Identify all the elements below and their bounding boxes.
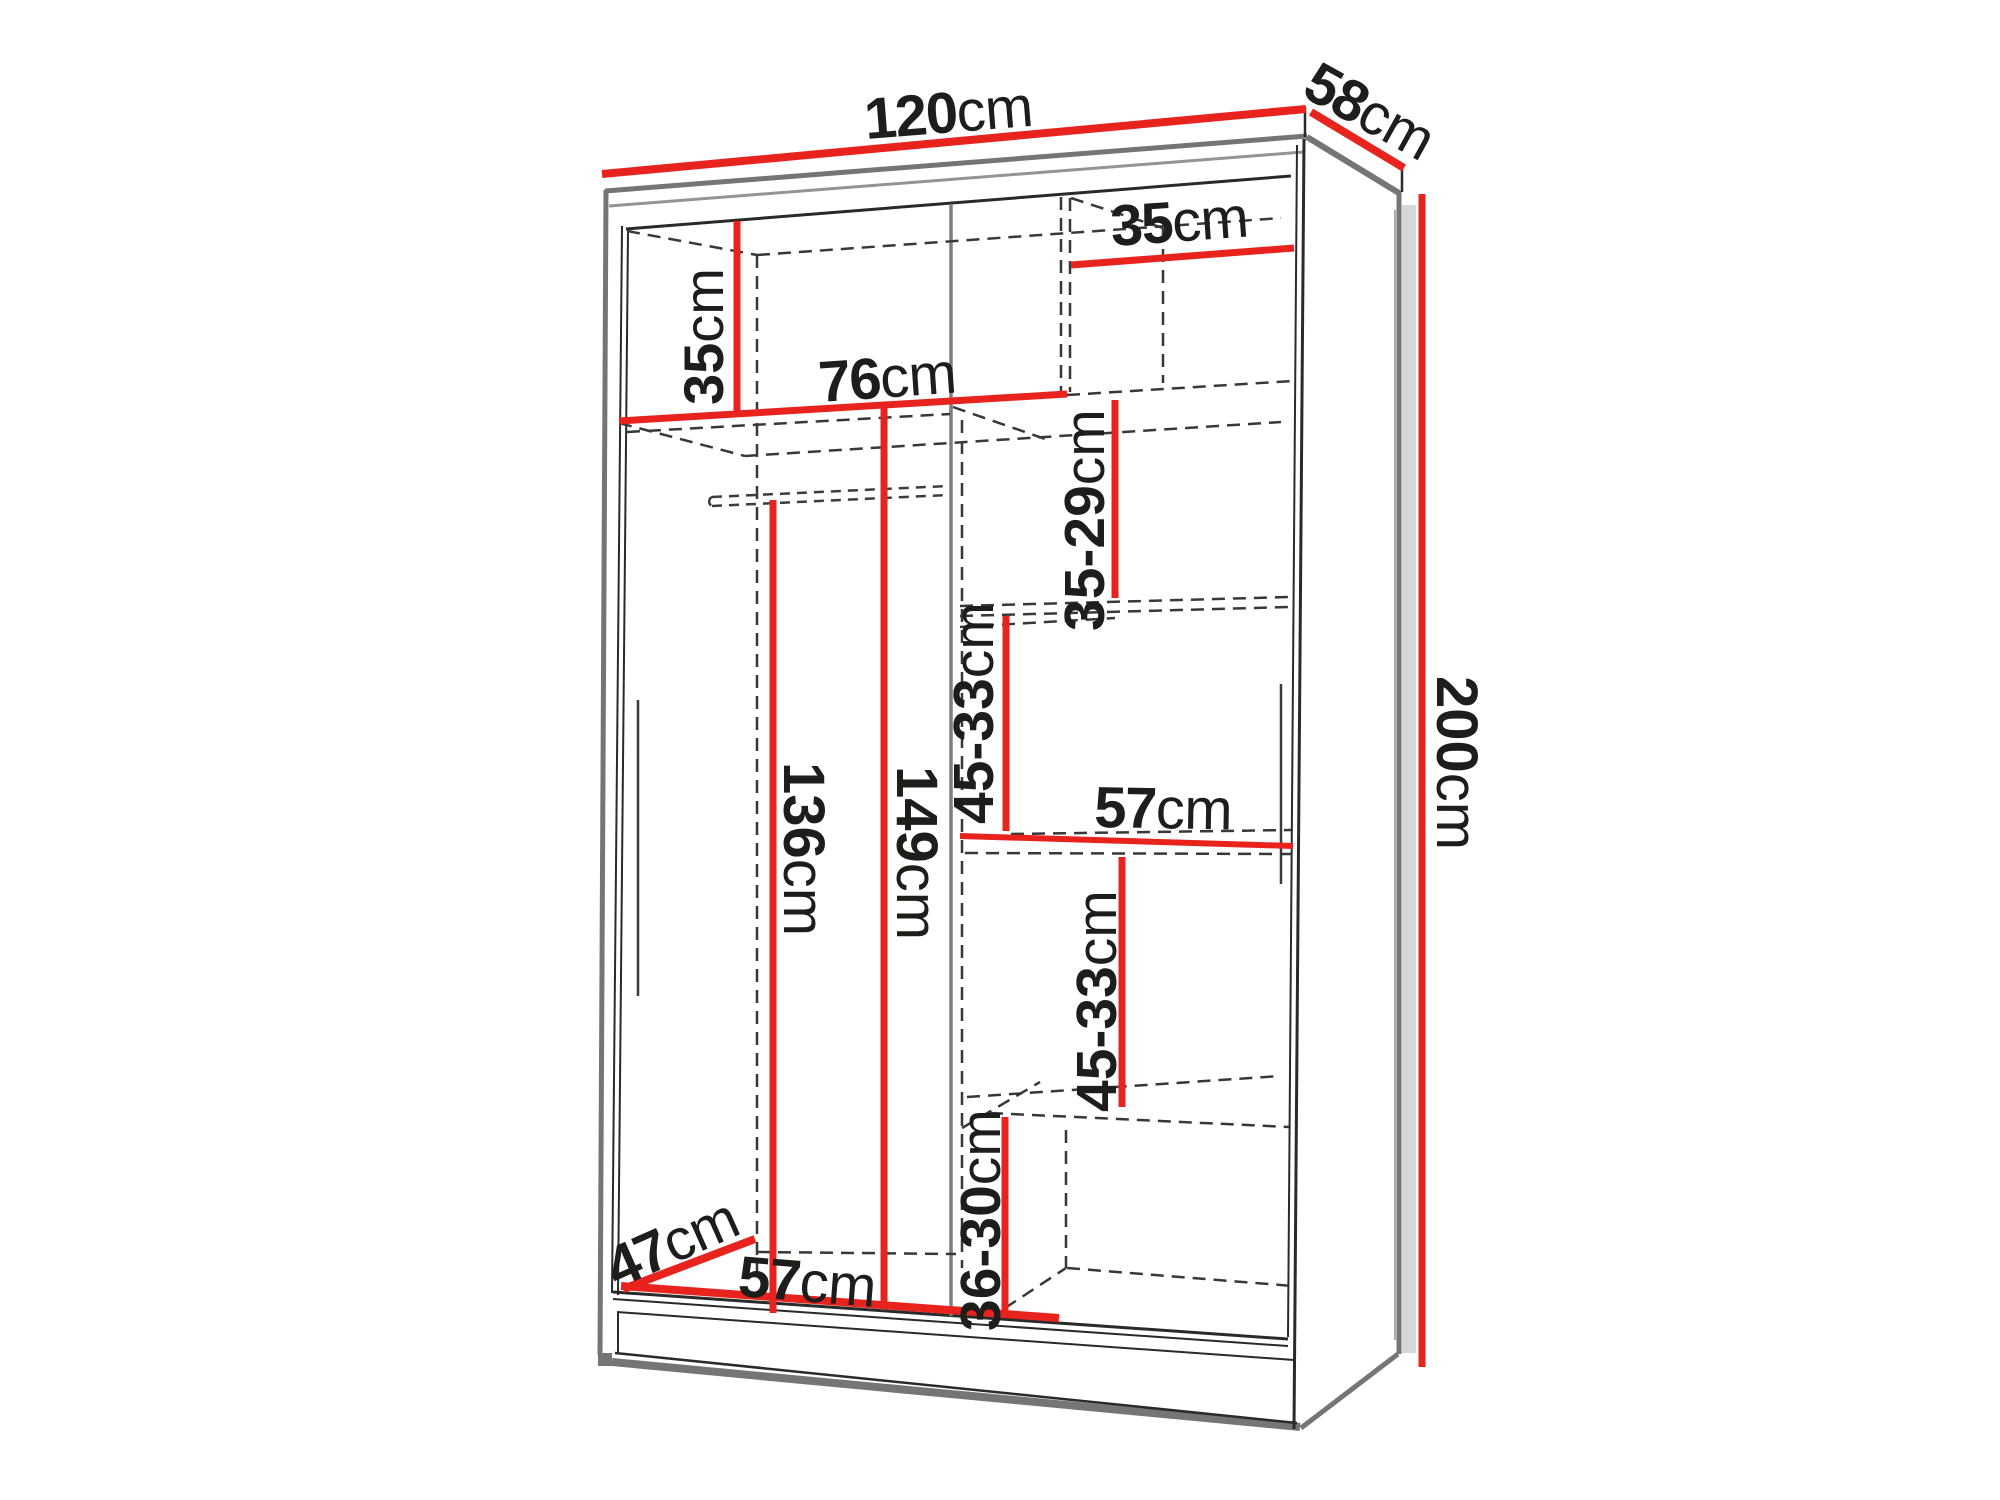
svg-text:35cm: 35cm [672, 268, 735, 405]
svg-text:35cm: 35cm [1108, 185, 1250, 259]
svg-text:120cm: 120cm [862, 74, 1035, 152]
svg-text:200cm: 200cm [1424, 676, 1489, 850]
svg-text:45-33cm: 45-33cm [942, 602, 1006, 824]
svg-text:36-30cm: 36-30cm [949, 1109, 1013, 1331]
svg-text:76cm: 76cm [816, 341, 958, 415]
svg-text:35-29cm: 35-29cm [1053, 409, 1117, 631]
svg-text:57cm: 57cm [1094, 775, 1233, 842]
svg-text:45-33cm: 45-33cm [1065, 890, 1129, 1112]
svg-text:57cm: 57cm [736, 1244, 879, 1320]
svg-text:149cm: 149cm [884, 766, 949, 940]
svg-text:136cm: 136cm [771, 762, 836, 936]
